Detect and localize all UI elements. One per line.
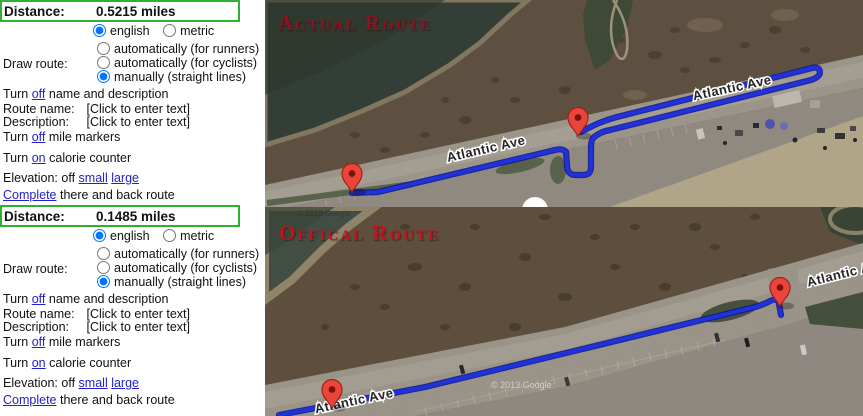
manually-label: manually (straight lines) bbox=[114, 70, 246, 84]
elevation-small-link[interactable]: small bbox=[79, 376, 108, 390]
map-actual-route[interactable]: Atlantic Ave Atlantic Ave Actual Route bbox=[265, 0, 863, 207]
calorie-on-link[interactable]: on bbox=[32, 356, 46, 370]
radio-metric-label: metric bbox=[180, 229, 214, 243]
calorie-row: Turn on calorie counter bbox=[3, 151, 131, 165]
description-value[interactable]: [Click to enter text] bbox=[86, 320, 190, 334]
radio-auto-runners[interactable] bbox=[97, 247, 110, 260]
toggle-pre: Turn bbox=[3, 292, 28, 306]
toggle-post: mile markers bbox=[49, 130, 121, 144]
radio-auto-cyclists[interactable] bbox=[97, 56, 110, 69]
elevation-large-link[interactable]: large bbox=[111, 376, 139, 390]
mile-markers-off-link[interactable]: off bbox=[32, 130, 46, 144]
radio-english[interactable] bbox=[93, 24, 106, 37]
distance-value: 0.1485 miles bbox=[96, 209, 176, 224]
calorie-on-link[interactable]: on bbox=[32, 151, 46, 165]
distance-label: Distance: bbox=[4, 209, 96, 224]
mile-markers-off-link[interactable]: off bbox=[32, 335, 46, 349]
name-desc-off-link[interactable]: off bbox=[32, 292, 46, 306]
auto-runners-label: automatically (for runners) bbox=[114, 247, 259, 261]
description-row: Description: [Click to enter text] bbox=[3, 320, 190, 334]
distance-label: Distance: bbox=[4, 4, 96, 19]
complete-row: Complete there and back route bbox=[3, 393, 175, 407]
distance-box: Distance: 0.1485 miles bbox=[0, 205, 240, 227]
complete-post: there and back route bbox=[60, 393, 175, 407]
draw-route-label: Draw route: bbox=[3, 262, 68, 276]
route-tool-app: Distance: 0.5215 miles english metric Dr… bbox=[0, 0, 863, 416]
elevation-off: off bbox=[61, 376, 75, 390]
toggle-pre: Turn bbox=[3, 151, 28, 165]
draw-route-row: Draw route: automatically (for runners) … bbox=[0, 247, 265, 289]
name-desc-off-link[interactable]: off bbox=[32, 87, 46, 101]
name-desc-toggle-row: Turn off name and description bbox=[3, 292, 168, 306]
radio-english-label: english bbox=[110, 229, 150, 243]
route-name-value[interactable]: [Click to enter text] bbox=[86, 102, 190, 116]
elevation-row: Elevation: off small large bbox=[3, 171, 139, 185]
elevation-small-link[interactable]: small bbox=[79, 171, 108, 185]
elevation-row: Elevation: off small large bbox=[3, 376, 139, 390]
radio-english[interactable] bbox=[93, 229, 106, 242]
elevation-label: Elevation: bbox=[3, 171, 58, 185]
radio-auto-cyclists[interactable] bbox=[97, 261, 110, 274]
toggle-post: mile markers bbox=[49, 335, 121, 349]
calorie-row: Turn on calorie counter bbox=[3, 356, 131, 370]
route-name-row: Route name: [Click to enter text] bbox=[3, 102, 190, 116]
complete-post: there and back route bbox=[60, 188, 175, 202]
auto-runners-label: automatically (for runners) bbox=[114, 42, 259, 56]
elevation-large-link[interactable]: large bbox=[111, 171, 139, 185]
radio-auto-runners[interactable] bbox=[97, 42, 110, 55]
route-name-label: Route name: bbox=[3, 102, 83, 116]
radio-manually[interactable] bbox=[97, 275, 110, 288]
auto-cyclists-label: automatically (for cyclists) bbox=[114, 56, 257, 70]
complete-link[interactable]: Complete bbox=[3, 188, 57, 202]
toggle-pre: Turn bbox=[3, 87, 28, 101]
control-panel-actual: Distance: 0.5215 miles english metric Dr… bbox=[0, 0, 265, 205]
route-name-row: Route name: [Click to enter text] bbox=[3, 307, 190, 321]
radio-metric-label: metric bbox=[180, 24, 214, 38]
name-desc-toggle-row: Turn off name and description bbox=[3, 87, 168, 101]
manually-label: manually (straight lines) bbox=[114, 275, 246, 289]
description-row: Description: [Click to enter text] bbox=[3, 115, 190, 129]
mile-markers-row: Turn off mile markers bbox=[3, 130, 120, 144]
distance-box: Distance: 0.5215 miles bbox=[0, 0, 240, 22]
toggle-pre: Turn bbox=[3, 356, 28, 370]
units-row: english metric bbox=[93, 24, 214, 38]
description-label: Description: bbox=[3, 320, 83, 334]
elevation-off: off bbox=[61, 171, 75, 185]
description-label: Description: bbox=[3, 115, 83, 129]
elevation-label: Elevation: bbox=[3, 376, 58, 390]
mile-markers-row: Turn off mile markers bbox=[3, 335, 120, 349]
radio-english-label: english bbox=[110, 24, 150, 38]
description-value[interactable]: [Click to enter text] bbox=[86, 115, 190, 129]
units-row: english metric bbox=[93, 229, 214, 243]
route-name-value[interactable]: [Click to enter text] bbox=[86, 307, 190, 321]
copyright-watermark: © 2013 Google bbox=[491, 380, 552, 390]
draw-route-label: Draw route: bbox=[3, 57, 68, 71]
radio-metric[interactable] bbox=[163, 229, 176, 242]
radio-metric[interactable] bbox=[163, 24, 176, 37]
toggle-pre: Turn bbox=[3, 130, 28, 144]
radio-manually[interactable] bbox=[97, 70, 110, 83]
copyright-watermark: © 2013 Google bbox=[297, 209, 351, 218]
complete-link[interactable]: Complete bbox=[3, 393, 57, 407]
distance-value: 0.5215 miles bbox=[96, 4, 176, 19]
toggle-post: name and description bbox=[49, 87, 169, 101]
toggle-pre: Turn bbox=[3, 335, 28, 349]
auto-cyclists-label: automatically (for cyclists) bbox=[114, 261, 257, 275]
toggle-post: calorie counter bbox=[49, 151, 131, 165]
route-name-label: Route name: bbox=[3, 307, 83, 321]
control-panel-offical: Distance: 0.1485 miles english metric Dr… bbox=[0, 205, 265, 410]
complete-row: Complete there and back route bbox=[3, 188, 175, 202]
toggle-post: name and description bbox=[49, 292, 169, 306]
draw-route-row: Draw route: automatically (for runners) … bbox=[0, 42, 265, 84]
map-offical-route[interactable]: © 2013 Google © 2013 Google Atlantic Ave… bbox=[265, 207, 863, 416]
toggle-post: calorie counter bbox=[49, 356, 131, 370]
